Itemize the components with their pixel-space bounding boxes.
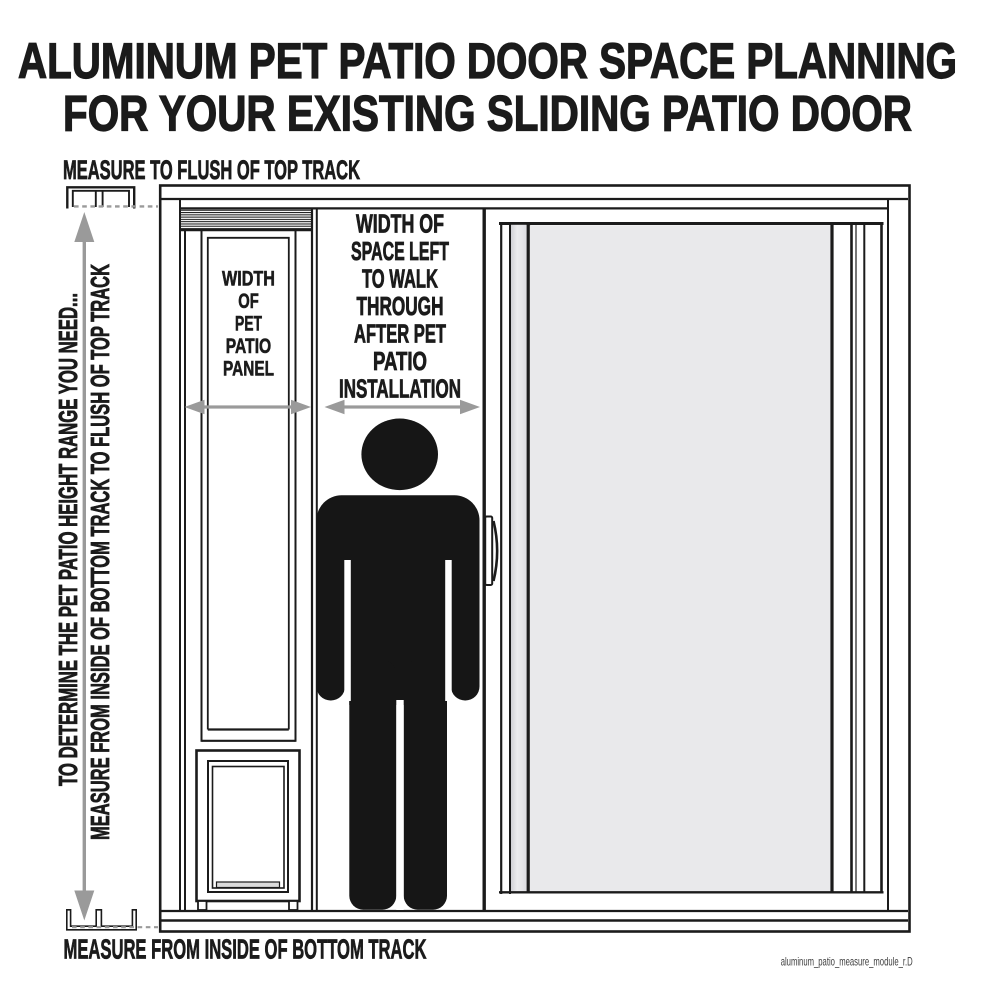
svg-text:TO WALK: TO WALK (362, 266, 438, 294)
svg-text:MEASURE FROM INSIDE OF BOTTOM: MEASURE FROM INSIDE OF BOTTOM TRACK (64, 934, 427, 965)
svg-text:PATIO: PATIO (226, 335, 271, 358)
svg-text:ALUMINUM PET PATIO DOOR SPACE: ALUMINUM PET PATIO DOOR SPACE PLANNING (18, 33, 957, 89)
svg-text:WIDTH OF: WIDTH OF (356, 211, 444, 239)
svg-text:PANEL: PANEL (223, 358, 274, 381)
svg-text:THROUGH: THROUGH (357, 293, 444, 321)
svg-text:PATIO: PATIO (373, 348, 427, 376)
svg-text:WIDTH: WIDTH (222, 268, 275, 291)
svg-text:FOR YOUR EXISTING SLIDING PATI: FOR YOUR EXISTING SLIDING PATIO DOOR (63, 86, 912, 142)
svg-text:INSTALLATION: INSTALLATION (339, 376, 461, 404)
svg-text:PET: PET (235, 313, 262, 336)
svg-text:TO DETERMINE THE PET PATIO HEI: TO DETERMINE THE PET PATIO HEIGHT RANGE … (55, 293, 83, 786)
svg-text:MEASURE FROM INSIDE OF BOTTOM: MEASURE FROM INSIDE OF BOTTOM TRACK TO F… (87, 264, 115, 840)
svg-text:OF: OF (238, 290, 259, 313)
svg-text:MEASURE TO FLUSH OF TOP TRACK: MEASURE TO FLUSH OF TOP TRACK (63, 155, 360, 185)
svg-text:SPACE LEFT: SPACE LEFT (351, 238, 449, 266)
svg-text:AFTER PET: AFTER PET (354, 321, 446, 349)
svg-text:aluminum_patio_measure_module_: aluminum_patio_measure_module_r.D (781, 954, 913, 968)
